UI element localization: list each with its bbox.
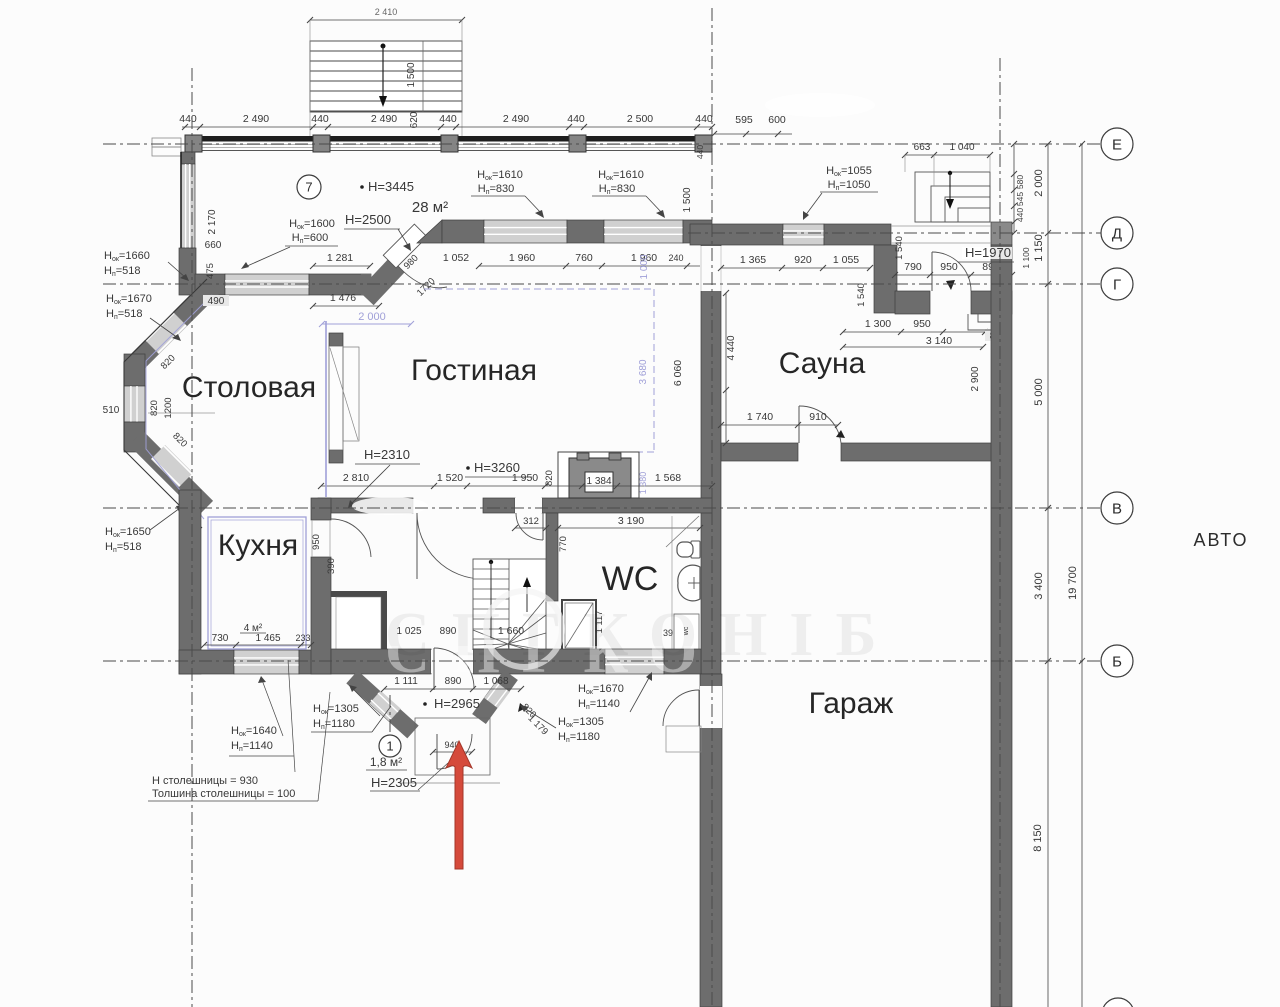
svg-text:1,8 м²: 1,8 м² bbox=[370, 755, 402, 769]
svg-text:1 384: 1 384 bbox=[586, 476, 611, 487]
svg-text:2 900: 2 900 bbox=[970, 366, 981, 391]
svg-text:595: 595 bbox=[735, 114, 753, 126]
svg-text:1 500: 1 500 bbox=[406, 62, 417, 87]
svg-text:1 380: 1 380 bbox=[638, 472, 648, 495]
svg-text:Столовая: Столовая bbox=[182, 371, 316, 404]
svg-text:H=3445: H=3445 bbox=[368, 179, 414, 194]
svg-text:Нп=518: Нп=518 bbox=[106, 308, 143, 321]
svg-text:Нп=830: Нп=830 bbox=[599, 183, 636, 196]
svg-text:В: В bbox=[1112, 500, 1122, 517]
svg-text:Сауна: Сауна bbox=[779, 347, 866, 380]
svg-text:Нок=1305: Нок=1305 bbox=[313, 703, 359, 716]
svg-text:2 490: 2 490 bbox=[371, 113, 397, 125]
svg-text:Нок=1610: Нок=1610 bbox=[598, 169, 644, 182]
svg-text:440: 440 bbox=[311, 113, 329, 125]
svg-text:3 400: 3 400 bbox=[1033, 572, 1045, 600]
svg-text:3 680: 3 680 bbox=[638, 359, 649, 384]
svg-text:Нп=830: Нп=830 bbox=[478, 183, 515, 196]
svg-text:440: 440 bbox=[695, 145, 705, 159]
svg-text:Б: Б bbox=[1112, 653, 1122, 670]
svg-text:1 150: 1 150 bbox=[1033, 234, 1045, 262]
svg-text:950: 950 bbox=[940, 261, 958, 273]
svg-text:4 м²: 4 м² bbox=[244, 623, 263, 634]
svg-text:760: 760 bbox=[575, 252, 593, 264]
svg-text:Нок=1610: Нок=1610 bbox=[477, 169, 523, 182]
svg-text:Нок=1055: Нок=1055 bbox=[826, 165, 872, 178]
svg-text:4 440: 4 440 bbox=[726, 335, 737, 360]
svg-text:2 490: 2 490 bbox=[503, 113, 529, 125]
svg-text:1 365: 1 365 bbox=[740, 254, 766, 266]
svg-text:Нп=518: Нп=518 bbox=[105, 541, 142, 554]
svg-text:2 000: 2 000 bbox=[358, 311, 386, 323]
svg-text:660: 660 bbox=[205, 240, 222, 251]
svg-text:1 281: 1 281 bbox=[327, 252, 353, 264]
svg-text:440: 440 bbox=[439, 113, 457, 125]
svg-text:440: 440 bbox=[567, 113, 585, 125]
svg-text:H=2500: H=2500 bbox=[345, 212, 391, 227]
svg-text:620: 620 bbox=[409, 111, 420, 128]
svg-text:770: 770 bbox=[558, 536, 569, 552]
svg-text:Нп=1140: Нп=1140 bbox=[578, 698, 620, 711]
svg-text:312: 312 bbox=[523, 516, 539, 527]
svg-text:Нп=1050: Нп=1050 bbox=[828, 179, 871, 192]
svg-text:Г: Г bbox=[1113, 276, 1121, 293]
svg-text:Нок=1305: Нок=1305 bbox=[558, 716, 604, 729]
svg-text:Нп=518: Нп=518 bbox=[104, 265, 141, 278]
svg-text:H=1970: H=1970 bbox=[965, 245, 1011, 260]
svg-text:1 520: 1 520 bbox=[437, 472, 463, 484]
svg-text:950: 950 bbox=[913, 318, 931, 330]
svg-text:Нок=1660: Нок=1660 bbox=[104, 250, 150, 263]
svg-text:820: 820 bbox=[544, 470, 555, 486]
svg-text:2 810: 2 810 bbox=[343, 472, 369, 484]
svg-text:240: 240 bbox=[668, 253, 683, 263]
svg-text:1 052: 1 052 bbox=[443, 252, 469, 264]
svg-text:1 111: 1 111 bbox=[394, 676, 418, 687]
svg-text:1 465: 1 465 bbox=[255, 633, 280, 644]
svg-text:600: 600 bbox=[768, 114, 786, 126]
svg-text:H=2305: H=2305 bbox=[371, 775, 417, 790]
svg-text:1 476: 1 476 bbox=[330, 292, 356, 304]
svg-text:510: 510 bbox=[103, 405, 120, 416]
svg-text:3 140: 3 140 bbox=[926, 335, 952, 347]
svg-text:1 960: 1 960 bbox=[509, 252, 535, 264]
svg-text:2 410: 2 410 bbox=[375, 7, 398, 17]
svg-text:Н столешницы = 930: Н столешницы = 930 bbox=[152, 775, 258, 787]
svg-text:Нок=1670: Нок=1670 bbox=[578, 683, 624, 696]
svg-text:790: 790 bbox=[904, 261, 922, 273]
svg-text:7: 7 bbox=[305, 180, 312, 195]
svg-text:1 568: 1 568 bbox=[655, 472, 681, 484]
svg-text:Гараж: Гараж bbox=[809, 687, 894, 720]
svg-text:950: 950 bbox=[311, 534, 322, 550]
svg-text:1 950: 1 950 bbox=[512, 472, 538, 484]
svg-text:1 740: 1 740 bbox=[747, 411, 773, 423]
svg-text:28 м²: 28 м² bbox=[412, 199, 448, 216]
svg-text:3 190: 3 190 bbox=[618, 515, 644, 527]
svg-text:1 300: 1 300 bbox=[865, 318, 891, 330]
svg-text:Нп=1180: Нп=1180 bbox=[558, 731, 600, 744]
svg-text:Нп=1180: Нп=1180 bbox=[313, 718, 355, 731]
svg-text:WC: WC bbox=[602, 560, 659, 598]
svg-text:820: 820 bbox=[170, 431, 189, 450]
svg-text:2 500: 2 500 bbox=[627, 113, 653, 125]
svg-text:1 540: 1 540 bbox=[856, 283, 867, 307]
svg-text:730: 730 bbox=[212, 633, 229, 644]
svg-text:Д: Д bbox=[1112, 225, 1122, 242]
svg-text:1 068: 1 068 bbox=[483, 676, 508, 687]
svg-text:Гостиная: Гостиная bbox=[411, 354, 537, 387]
svg-text:890: 890 bbox=[445, 676, 462, 687]
svg-text:1 000: 1 000 bbox=[639, 254, 650, 279]
svg-text:1 100: 1 100 bbox=[1021, 247, 1031, 269]
svg-text:6 060: 6 060 bbox=[672, 360, 684, 386]
svg-text:АВТО: АВТО bbox=[1194, 530, 1249, 550]
svg-text:820: 820 bbox=[149, 400, 160, 416]
svg-text:910: 910 bbox=[809, 411, 827, 423]
svg-text:Е: Е bbox=[1112, 136, 1122, 153]
svg-text:1 055: 1 055 bbox=[833, 254, 859, 266]
svg-text:475: 475 bbox=[205, 263, 216, 279]
svg-text:1: 1 bbox=[386, 739, 393, 754]
svg-text:2 490: 2 490 bbox=[243, 113, 269, 125]
svg-text:440: 440 bbox=[179, 113, 197, 125]
svg-text:Нп=1140: Нп=1140 bbox=[231, 740, 273, 753]
svg-text:Нок=1600: Нок=1600 bbox=[289, 218, 335, 231]
svg-text:H=2310: H=2310 bbox=[364, 447, 410, 462]
svg-text:1200: 1200 bbox=[163, 397, 174, 418]
svg-text:Толшина столешницы = 100: Толшина столешницы = 100 bbox=[152, 788, 295, 800]
svg-text:Нок=1650: Нок=1650 bbox=[105, 526, 151, 539]
svg-text:8 150: 8 150 bbox=[1032, 824, 1044, 852]
svg-text:920: 920 bbox=[794, 254, 812, 266]
svg-text:820: 820 bbox=[159, 353, 178, 372]
svg-text:2 170: 2 170 bbox=[207, 209, 218, 234]
svg-text:Нок=1640: Нок=1640 bbox=[231, 725, 277, 738]
svg-text:Кухня: Кухня bbox=[218, 529, 298, 562]
svg-text:1 540: 1 540 bbox=[894, 236, 905, 260]
svg-text:19 700: 19 700 bbox=[1067, 566, 1079, 600]
svg-text:1 500: 1 500 bbox=[682, 187, 693, 212]
svg-text:490: 490 bbox=[208, 296, 225, 307]
svg-text:Нок=1670: Нок=1670 bbox=[106, 293, 152, 306]
svg-text:440: 440 bbox=[695, 113, 713, 125]
svg-text:390: 390 bbox=[326, 558, 337, 574]
svg-text:Нп=600: Нп=600 bbox=[292, 232, 329, 245]
svg-text:233: 233 bbox=[295, 633, 310, 643]
svg-text:H=2965: H=2965 bbox=[434, 696, 480, 711]
svg-text:2 000: 2 000 bbox=[1033, 169, 1045, 197]
svg-text:5 000: 5 000 bbox=[1033, 378, 1045, 406]
